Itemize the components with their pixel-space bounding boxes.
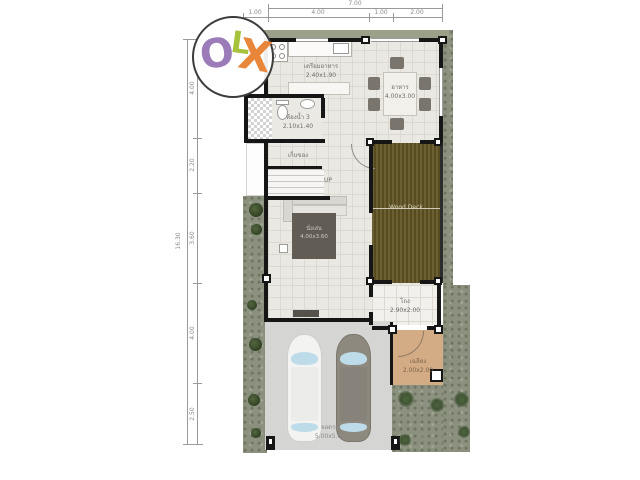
wall-pillar: [262, 274, 271, 283]
olx-letter-x: X: [235, 29, 275, 83]
dim-tick: [193, 193, 202, 194]
wood-deck: [372, 143, 440, 283]
kitchen-name: เตรียมอาหาร: [288, 62, 354, 71]
kitchen-sink: [333, 43, 349, 54]
side-table: [279, 244, 288, 253]
dim-tick: [442, 13, 443, 22]
dining-name: อาหาร: [383, 83, 417, 92]
wall-pillar: [388, 325, 397, 334]
wall-hall-right: [437, 285, 441, 325]
dim-top-total: 7.00: [340, 0, 370, 8]
wall-living-bottom: [264, 318, 372, 322]
garage-label: จอดรถ 5.00x5.00: [303, 423, 357, 441]
kitchen-label: เตรียมอาหาร 2.40x1.90: [288, 62, 354, 80]
window-top-1: [296, 38, 328, 42]
dim-top-seg-2: 1.00: [366, 9, 396, 17]
wall-bathroom-right: [321, 98, 325, 118]
up-text: UP: [318, 176, 338, 185]
dim-tick: [193, 138, 202, 139]
dim-left-seg-line: [197, 39, 198, 445]
dining-chair: [368, 98, 380, 111]
wall-top-2: [328, 38, 362, 42]
living-floor-lower: [268, 285, 372, 322]
palm-plant: [454, 392, 469, 407]
deck-name: Wood Deck: [372, 203, 440, 212]
wall-deck-right: [440, 143, 443, 283]
dining-chair: [368, 77, 380, 90]
car-gray-windshield: [340, 352, 367, 365]
palm-plant: [398, 391, 414, 407]
dining-chair: [419, 98, 431, 111]
side-pad: [246, 143, 265, 196]
bush: [247, 300, 257, 310]
wall-storage-bottom: [268, 166, 322, 169]
dim-top-seg-line: [243, 17, 443, 18]
wall-pillar: [366, 277, 374, 285]
dim-top-seg-3: 2.00: [402, 9, 432, 17]
living-name: นั่งเล่น: [292, 225, 336, 233]
porch-name: เฉลียง: [393, 357, 443, 366]
tv-console: [293, 310, 319, 317]
hall-name: โถง: [380, 297, 430, 306]
wall-stairs-bottom: [266, 196, 330, 200]
dim-left-seg-4: 2.50: [189, 399, 197, 429]
window-right: [439, 68, 443, 116]
bathroom-label: ห้องน้ำ 3 2.10x1.40: [275, 113, 321, 131]
wall-bathroom-left: [244, 94, 248, 143]
storage-label: เก็บของ: [275, 151, 321, 160]
dim-tick: [442, 4, 443, 13]
storage-name: เก็บของ: [275, 151, 321, 160]
dim-left-seg-2: 3.60: [189, 223, 197, 253]
dim-tick: [183, 444, 203, 445]
dim-tick: [193, 283, 202, 284]
dim-left-seg-0: 4.00: [189, 73, 197, 103]
floor-plan: เตรียมอาหาร 2.40x1.90 อาหาร 4.00x3.00 ห้…: [0, 0, 640, 480]
palm-plant: [399, 434, 411, 446]
staircase: [266, 169, 324, 197]
garage-size: 5.00x5.00: [303, 432, 357, 441]
dim-top-seg-0: 1.00: [240, 9, 270, 17]
hall-label: โถง 2.90x2.00: [380, 297, 430, 315]
grass-right-strip: [443, 30, 453, 285]
bush: [249, 203, 263, 217]
wall-pillar: [434, 138, 442, 146]
bathroom-size: 2.10x1.40: [275, 122, 321, 131]
wall-pillar: [438, 36, 447, 44]
wall-hall-left2: [369, 312, 373, 325]
dim-top-seg-1: 4.00: [303, 9, 333, 17]
garage-name: จอดรถ: [303, 423, 357, 432]
wall-pillar: [434, 277, 442, 285]
living-size: 4.00x3.60: [292, 233, 336, 241]
dim-tick: [193, 383, 202, 384]
sink: [300, 99, 315, 109]
wall-hall-left: [369, 285, 373, 297]
hall-size: 2.90x2.00: [380, 306, 430, 315]
garage-pillar: [266, 436, 275, 450]
bush: [251, 224, 262, 235]
wood-deck-label: Wood Deck: [372, 203, 440, 212]
dining-chair: [390, 118, 404, 130]
palm-plant: [430, 398, 444, 412]
car-white-windshield: [291, 352, 318, 365]
wall-deck-bottom-1: [372, 280, 392, 284]
dining-size: 4.00x3.00: [383, 92, 417, 101]
palm-plant: [458, 426, 470, 438]
wall-pillar: [366, 138, 374, 146]
bathroom-shower-tiles: [248, 98, 272, 139]
stove-burner: [279, 53, 285, 59]
olx-watermark: O L X: [192, 16, 274, 98]
stairs-up-label: UP: [318, 176, 338, 185]
dim-left-total: 16.30: [175, 226, 183, 256]
bush: [249, 338, 262, 351]
wall-bathroom-top: [244, 94, 324, 98]
dim-left-total-line: [187, 39, 188, 445]
kitchen-size: 2.40x1.90: [288, 71, 354, 80]
porch-label: เฉลียง 2.00x2.00: [393, 357, 443, 375]
wall-pillar: [434, 325, 443, 334]
bathroom-name: ห้องน้ำ 3: [275, 113, 321, 122]
dining-chair: [390, 57, 404, 69]
dining-label: อาหาร 4.00x3.00: [383, 83, 417, 101]
dim-left-seg-3: 4.00: [189, 318, 197, 348]
living-label: นั่งเล่น 4.00x3.60: [292, 225, 336, 241]
bush: [248, 394, 260, 406]
dim-left-seg-1: 2.20: [189, 150, 197, 180]
wall-pillar: [361, 36, 370, 44]
porch-size: 2.00x2.00: [393, 366, 443, 375]
window-top-2: [371, 38, 419, 42]
car-gray-roof: [340, 367, 367, 421]
wall-bathroom-bottom: [244, 139, 325, 143]
wall-deck-top-1: [372, 140, 392, 144]
stove-burner: [279, 44, 285, 50]
car-white-roof: [291, 367, 318, 421]
bush: [251, 428, 261, 438]
dining-chair: [419, 77, 431, 90]
